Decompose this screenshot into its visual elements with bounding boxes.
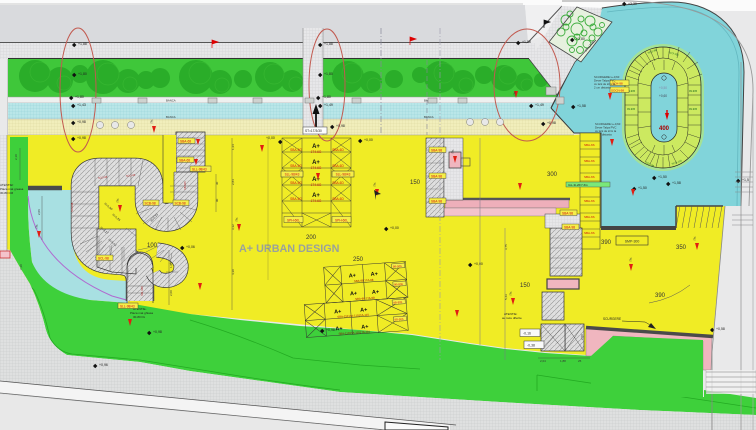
svg-text:99-905: 99-905	[627, 107, 636, 111]
svg-text:SPH-60L: SPH-60L	[335, 219, 348, 223]
svg-text:SBA-68: SBA-68	[180, 140, 191, 144]
svg-text:SLL-98/43: SLL-98/43	[192, 168, 207, 172]
svg-text:3,32: 3,32	[231, 224, 235, 230]
svg-text:9B-905: 9B-905	[394, 317, 404, 322]
svg-text:1,88: 1,88	[560, 359, 566, 363]
svg-text:+3,30: +3,30	[628, 2, 637, 6]
svg-text:SBA-6D: SBA-6D	[332, 197, 344, 201]
svg-text:SBA-6S: SBA-6S	[584, 231, 595, 235]
svg-text:+1,80: +1,80	[576, 37, 585, 41]
svg-text:+1,88: +1,88	[522, 40, 531, 44]
svg-text:A+ URBAN DESIGN: A+ URBAN DESIGN	[239, 243, 340, 255]
svg-text:+0,98: +0,98	[77, 120, 86, 124]
svg-text:SLL-98/43: SLL-98/43	[120, 305, 135, 309]
svg-text:+1,58: +1,58	[577, 104, 586, 108]
svg-text:SMP-300: SMP-300	[625, 240, 640, 244]
svg-text:SBA-6G: SBA-6G	[290, 164, 302, 168]
svg-text:BANCA: BANCA	[424, 115, 434, 119]
svg-text:9B-905: 9B-905	[393, 300, 403, 305]
svg-text:1T4-6G: 1T4-6G	[311, 166, 322, 170]
svg-text:SBA-68: SBA-68	[179, 159, 190, 163]
svg-text:+1,80: +1,80	[322, 95, 331, 99]
svg-text:90: 90	[215, 198, 219, 202]
svg-text:5,43: 5,43	[504, 294, 508, 300]
svg-text:390: 390	[655, 293, 666, 299]
svg-text:1T4-6G: 1T4-6G	[311, 199, 322, 203]
svg-text:SBA-98: SBA-98	[431, 175, 442, 179]
svg-text:350: 350	[676, 245, 687, 251]
svg-text:SBA-6S: SBA-6S	[584, 175, 595, 179]
svg-text:SPH-60L: SPH-60L	[287, 219, 300, 223]
svg-text:+0,98: +0,98	[326, 328, 335, 332]
svg-text:ST=1T/3/30: ST=1T/3/30	[305, 129, 322, 133]
svg-text:+1,88: +1,88	[324, 42, 333, 46]
svg-text:SCL-98: SCL-98	[98, 257, 109, 261]
svg-text:SBA-6S: SBA-6S	[584, 215, 595, 219]
svg-text:+1,49: +1,49	[535, 103, 544, 107]
svg-text:SBA-6G: SBA-6G	[290, 197, 302, 201]
svg-text:SBA-6S: SBA-6S	[584, 199, 595, 203]
svg-text:9B-905: 9B-905	[394, 282, 404, 287]
svg-text:+0,00: +0,00	[364, 138, 373, 142]
svg-text:IAL-3L26/7-6G: IAL-3L26/7-6G	[568, 183, 588, 187]
svg-text:2,84: 2,84	[231, 179, 235, 185]
svg-text:+0,98: +0,98	[153, 330, 162, 334]
svg-text:1T4-6G: 1T4-6G	[311, 183, 322, 187]
svg-text:au raze diferite: au raze diferite	[502, 316, 522, 320]
svg-text:SCH-98: SCH-98	[70, 202, 74, 212]
svg-text:+1,50: +1,50	[658, 175, 667, 179]
svg-text:+1,50: +1,50	[638, 186, 647, 190]
svg-text:SCURGERE: SCURGERE	[603, 317, 621, 321]
svg-text:SBA-6D: SBA-6D	[332, 148, 344, 152]
svg-text:25: 25	[578, 359, 582, 363]
svg-text:2,04: 2,04	[540, 359, 546, 363]
svg-text:+0,00: +0,00	[390, 226, 399, 230]
svg-text:SOCN-98: SOCN-98	[611, 89, 624, 93]
svg-text:250: 250	[353, 257, 364, 263]
svg-text:30-80 CM: 30-80 CM	[0, 191, 14, 195]
svg-text:4,30: 4,30	[231, 269, 235, 275]
svg-text:+0,98: +0,98	[77, 136, 86, 140]
svg-text:7,20: 7,20	[19, 264, 23, 270]
svg-text:+0,00: +0,00	[474, 262, 483, 266]
svg-text:99-905: 99-905	[689, 107, 698, 111]
svg-text:99-905: 99-905	[689, 89, 698, 93]
svg-text:200: 200	[306, 235, 317, 241]
svg-text:30-80 Dx: 30-80 Dx	[133, 315, 146, 319]
svg-text:S01-905: S01-905	[140, 286, 144, 296]
svg-text:SBA-98: SBA-98	[431, 200, 442, 204]
svg-text:+0,50: +0,50	[659, 86, 667, 90]
svg-text:2,10: 2,10	[14, 154, 18, 160]
svg-text:+1,88: +1,88	[78, 42, 87, 46]
svg-text:+0,98: +0,98	[336, 124, 345, 128]
svg-text:+1,5: +1,5	[742, 178, 749, 182]
svg-text:-0,16: -0,16	[523, 332, 531, 336]
svg-text:1,24: 1,24	[231, 144, 235, 150]
svg-text:SBA-98: SBA-98	[562, 212, 573, 216]
svg-text:SBA-6S: SBA-6S	[584, 159, 595, 163]
svg-text:SBA-6G: SBA-6G	[290, 181, 302, 185]
svg-text:SLL-98/43: SLL-98/43	[285, 173, 300, 177]
svg-text:150: 150	[410, 180, 421, 186]
svg-text:+0,58: +0,58	[716, 327, 725, 331]
svg-text:1T4-6G: 1T4-6G	[311, 150, 322, 154]
svg-text:2,00: 2,00	[169, 290, 173, 296]
svg-text:BANCA: BANCA	[166, 115, 176, 119]
svg-text:+1,49: +1,49	[324, 103, 333, 107]
svg-text:2,06: 2,06	[37, 209, 41, 215]
svg-text:SB-905: SB-905	[183, 181, 187, 190]
svg-text:+1,43: +1,43	[77, 103, 86, 107]
svg-text:+1,80: +1,80	[78, 72, 87, 76]
svg-text:300: 300	[547, 172, 558, 178]
svg-text:+0,96: +0,96	[99, 363, 108, 367]
svg-text:+0,98: +0,98	[547, 121, 556, 125]
svg-text:2,50: 2,50	[580, 334, 584, 340]
svg-text:-0,38: -0,38	[527, 344, 535, 348]
svg-text:SLL-98/43: SLL-98/43	[336, 173, 351, 177]
svg-text:400: 400	[659, 126, 670, 132]
svg-text:+0,60: +0,60	[659, 94, 667, 98]
svg-text:BANCA: BANCA	[166, 99, 176, 103]
svg-text:SBA-6S: SBA-6S	[584, 143, 595, 147]
svg-text:9B-905: 9B-905	[393, 264, 403, 269]
svg-text:+0,06: +0,06	[186, 245, 195, 249]
svg-text:30: 30	[215, 181, 219, 185]
svg-text:SBA-6D: SBA-6D	[332, 164, 344, 168]
svg-text:2 cm distanta: 2 cm distanta	[594, 86, 611, 90]
svg-text:SCB-98: SCB-98	[145, 202, 156, 206]
svg-text:390: 390	[601, 240, 612, 246]
svg-text:SBA-6D: SBA-6D	[332, 181, 344, 185]
svg-text:100: 100	[147, 243, 158, 249]
svg-text:+1,80: +1,80	[324, 72, 333, 76]
svg-text:SBA-6G: SBA-6G	[290, 148, 302, 152]
svg-text:+0,00: +0,00	[266, 136, 275, 140]
svg-text:1,85: 1,85	[169, 262, 173, 268]
svg-text:SCB-98: SCB-98	[175, 202, 186, 206]
svg-text:3,75: 3,75	[504, 244, 508, 250]
svg-text:+1,58: +1,58	[672, 181, 681, 185]
svg-text:SBA-98: SBA-98	[431, 149, 442, 153]
svg-text:150: 150	[520, 283, 531, 289]
svg-text:SBA-98: SBA-98	[564, 226, 575, 230]
svg-text:+1,80: +1,80	[75, 95, 84, 99]
